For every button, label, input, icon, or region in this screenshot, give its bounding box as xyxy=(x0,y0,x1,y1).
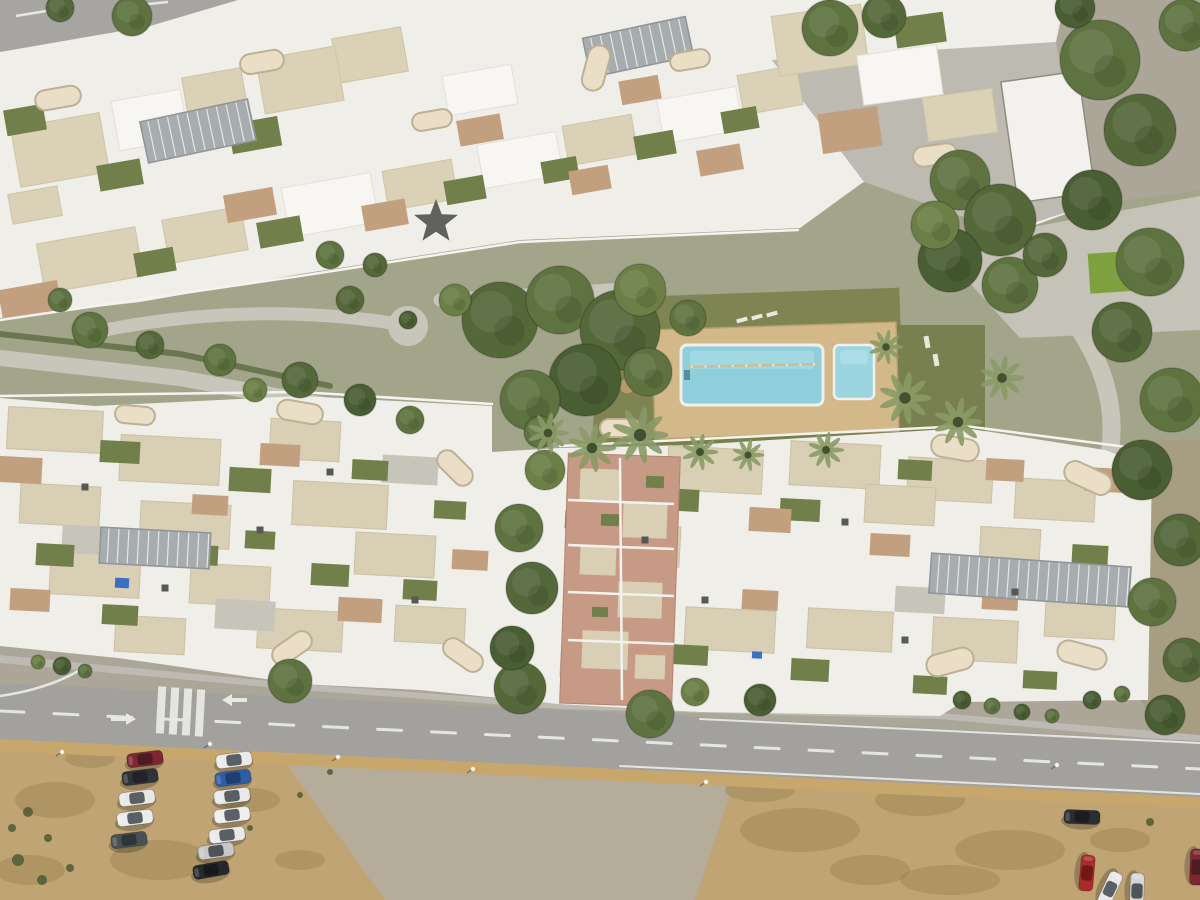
aerial-photo xyxy=(0,0,1200,900)
kids-pool-sheen xyxy=(840,350,868,364)
screenshot-root xyxy=(0,0,1200,900)
pool-ladder xyxy=(684,370,690,380)
